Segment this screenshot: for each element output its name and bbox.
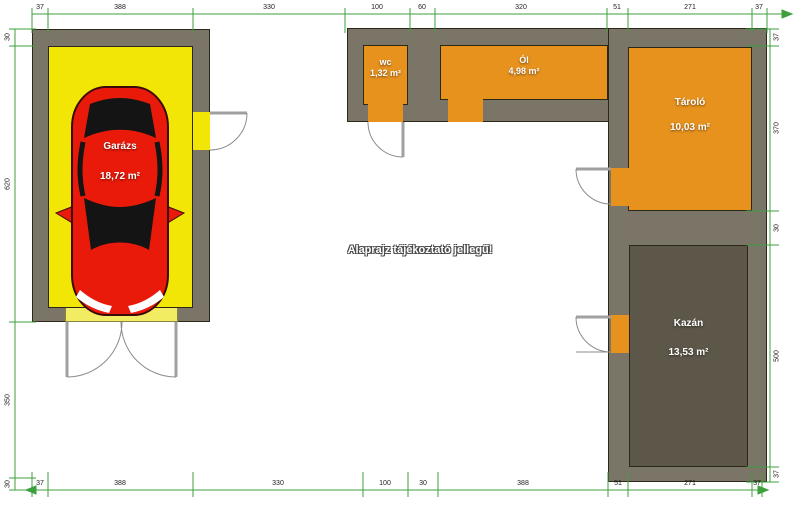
dim-top-2: 330 <box>263 4 275 11</box>
dim-top-6: 51 <box>613 4 621 11</box>
dim-top-7: 271 <box>684 4 696 11</box>
dim-right-2: 30 <box>774 224 781 232</box>
dim-right-3: 500 <box>774 350 781 362</box>
garage-floor <box>48 46 193 308</box>
garage-gate-threshold <box>65 308 178 322</box>
dim-right-0: 37 <box>774 33 781 41</box>
plan-disclaimer: Alaprajz tájékoztató jellegű! <box>285 244 555 256</box>
dim-bottom-4: 30 <box>419 480 427 487</box>
kazan-door-threshold <box>611 315 629 353</box>
ol-floor <box>440 45 608 100</box>
dim-left-0: 30 <box>5 33 12 41</box>
dim-top-1: 388 <box>114 4 126 11</box>
dim-bottom-3: 100 <box>379 480 391 487</box>
dim-right-1: 370 <box>774 122 781 134</box>
dim-bottom-1: 388 <box>114 480 126 487</box>
dim-left-1: 620 <box>5 178 12 190</box>
dim-top-3: 100 <box>371 4 383 11</box>
dim-right-4: 37 <box>774 470 781 478</box>
tarolo-floor <box>628 47 752 211</box>
dim-left-3: 30 <box>5 480 12 488</box>
wc-floor <box>363 45 408 105</box>
ol-door-threshold <box>448 99 483 122</box>
dim-top-4: 60 <box>418 4 426 11</box>
dim-top-5: 320 <box>515 4 527 11</box>
dim-left-2: 350 <box>5 394 12 406</box>
garage-side-door-opening <box>193 112 210 150</box>
dim-top-8: 37 <box>755 4 763 11</box>
tarolo-door-threshold <box>611 168 629 206</box>
dim-bottom-2: 330 <box>272 480 284 487</box>
wc-door-threshold <box>368 103 403 122</box>
floor-plan: Garázs 18,72 m² wc 1,32 m² Ól 4,98 m² Tá… <box>0 0 800 513</box>
kazan-floor <box>629 245 748 467</box>
dim-bottom-0: 37 <box>36 480 44 487</box>
dim-top-0: 37 <box>36 4 44 11</box>
dim-bottom-5: 388 <box>517 480 529 487</box>
